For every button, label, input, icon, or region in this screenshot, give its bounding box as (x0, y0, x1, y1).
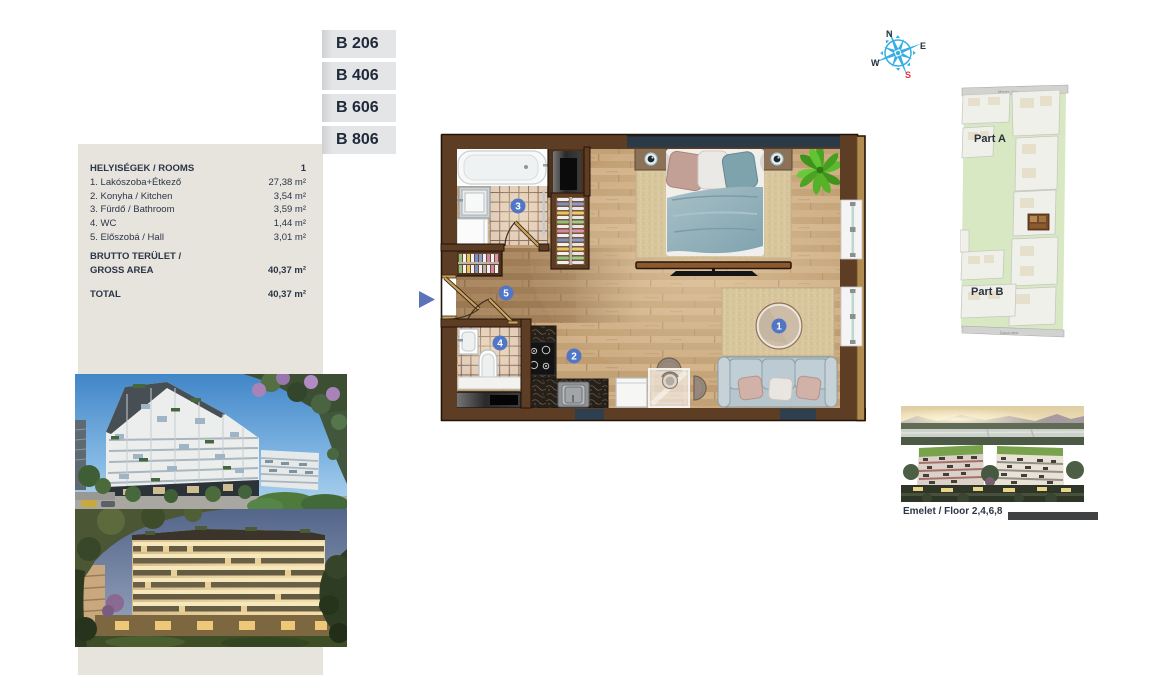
svg-text:W: W (871, 58, 880, 68)
svg-text:Part A: Part A (974, 133, 1006, 145)
svg-text:Duna utca: Duna utca (1000, 330, 1019, 335)
svg-text:S: S (905, 70, 911, 80)
svg-text:2: 2 (571, 352, 577, 363)
svg-text:E: E (920, 41, 926, 51)
svg-text:4: 4 (497, 339, 503, 350)
svg-text:5: 5 (503, 289, 509, 300)
svg-text:3: 3 (515, 202, 521, 213)
svg-text:1: 1 (776, 322, 782, 333)
svg-text:N: N (886, 29, 893, 39)
svg-text:Part B: Part B (971, 286, 1003, 298)
